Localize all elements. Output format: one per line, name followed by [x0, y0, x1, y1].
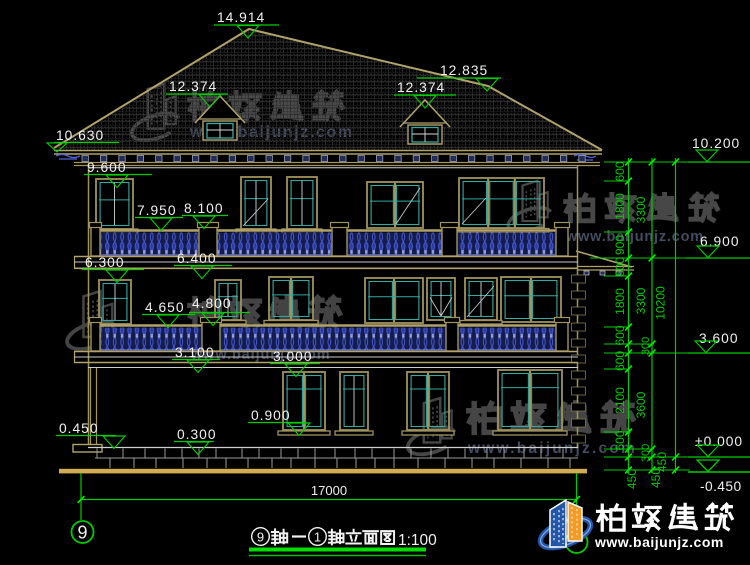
svg-text:12.835: 12.835 [440, 63, 488, 78]
svg-text:2100: 2100 [613, 387, 627, 414]
svg-text:3.000: 3.000 [273, 349, 313, 364]
svg-text:0.300: 0.300 [177, 427, 217, 442]
svg-text:17000: 17000 [311, 483, 347, 498]
svg-text:1:100: 1:100 [398, 532, 437, 549]
svg-text:12.374: 12.374 [169, 79, 217, 94]
svg-text:450: 450 [625, 469, 639, 489]
svg-text:6.400: 6.400 [177, 251, 217, 266]
svg-text:3.600: 3.600 [699, 331, 739, 346]
svg-text:4.650: 4.650 [145, 300, 185, 315]
svg-text:9: 9 [257, 530, 264, 545]
svg-text:10.630: 10.630 [56, 128, 104, 143]
svg-text:www.baijunjz.com: www.baijunjz.com [594, 534, 724, 550]
svg-text:300: 300 [640, 337, 652, 355]
svg-text:3300: 3300 [634, 196, 648, 223]
svg-text:600: 600 [613, 161, 627, 181]
svg-text:4.800: 4.800 [192, 296, 232, 311]
svg-text:1: 1 [314, 530, 321, 545]
svg-text:1800: 1800 [613, 193, 627, 220]
svg-text:3600: 3600 [634, 391, 648, 418]
svg-text:450: 450 [655, 452, 669, 472]
svg-text:9.600: 9.600 [87, 160, 127, 175]
svg-text:7.950: 7.950 [137, 203, 177, 218]
svg-text:±0.000: ±0.000 [695, 434, 743, 449]
svg-text:600: 600 [613, 430, 627, 450]
svg-text:300: 300 [640, 444, 652, 462]
svg-text:3.100: 3.100 [175, 345, 215, 360]
svg-text:12.374: 12.374 [397, 80, 445, 95]
svg-text:600: 600 [613, 351, 627, 371]
svg-text:9: 9 [77, 523, 87, 543]
svg-text:www.baijunjz.com: www.baijunjz.com [565, 229, 704, 245]
svg-text:600: 600 [613, 325, 627, 345]
svg-text:900: 900 [613, 235, 627, 255]
svg-text:6.300: 6.300 [85, 255, 125, 270]
svg-text:-0.450: -0.450 [700, 479, 742, 494]
svg-text:8.100: 8.100 [184, 201, 224, 216]
svg-text:14.914: 14.914 [217, 10, 265, 25]
svg-text:0.450: 0.450 [59, 421, 99, 436]
svg-text:10.200: 10.200 [692, 136, 740, 151]
svg-text:6.900: 6.900 [700, 234, 740, 249]
svg-text:0.900: 0.900 [251, 408, 291, 423]
svg-text:10200: 10200 [654, 286, 668, 320]
svg-text:3300: 3300 [634, 287, 648, 314]
svg-text:1800: 1800 [613, 288, 627, 315]
svg-text:600: 600 [613, 257, 627, 277]
